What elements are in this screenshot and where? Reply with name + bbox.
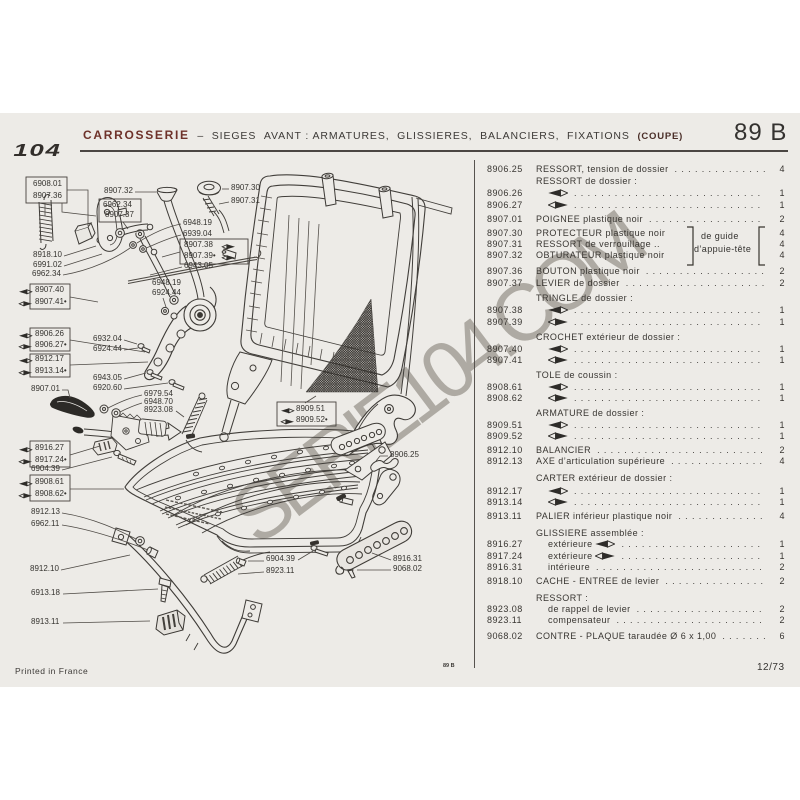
svg-text:8912.17: 8912.17 <box>35 354 64 363</box>
svg-text:8909.51: 8909.51 <box>296 404 325 413</box>
svg-text:8913.11: 8913.11 <box>31 617 60 626</box>
svg-text:8917.24•: 8917.24• <box>35 455 67 464</box>
svg-text:8907.37: 8907.37 <box>105 210 134 219</box>
svg-text:6948.19: 6948.19 <box>152 278 181 287</box>
svg-text:8908.61: 8908.61 <box>35 477 64 486</box>
svg-text:6943.05: 6943.05 <box>93 373 122 382</box>
svg-text:6913.18: 6913.18 <box>31 588 60 597</box>
svg-text:8913.14•: 8913.14• <box>35 366 67 375</box>
svg-text:6939.04: 6939.04 <box>183 229 212 238</box>
svg-text:8907.39•: 8907.39• <box>184 251 216 260</box>
svg-text:8907.41•: 8907.41• <box>35 297 67 306</box>
svg-text:6908.01: 6908.01 <box>33 179 62 188</box>
svg-text:6932.04: 6932.04 <box>93 334 122 343</box>
svg-text:8918.10: 8918.10 <box>33 250 62 259</box>
svg-text:8907.38: 8907.38 <box>184 240 213 249</box>
svg-text:8907.32: 8907.32 <box>104 186 133 195</box>
svg-text:6962.34: 6962.34 <box>103 200 132 209</box>
svg-text:6904.39: 6904.39 <box>31 464 60 473</box>
svg-text:8912.13: 8912.13 <box>31 507 60 516</box>
svg-text:8907.36: 8907.36 <box>33 191 62 200</box>
svg-text:6924.44: 6924.44 <box>152 288 181 297</box>
svg-text:8909.52•: 8909.52• <box>296 415 328 424</box>
svg-text:8906.25: 8906.25 <box>390 450 419 459</box>
svg-text:104: 104 <box>13 140 61 160</box>
svg-text:6904.39: 6904.39 <box>266 554 295 563</box>
svg-text:6948.19: 6948.19 <box>183 218 212 227</box>
svg-text:6924.44: 6924.44 <box>93 344 122 353</box>
svg-text:8907.30: 8907.30 <box>231 183 260 192</box>
svg-text:8907.31: 8907.31 <box>231 196 260 205</box>
svg-text:6962.34: 6962.34 <box>32 269 61 278</box>
svg-text:8916.27: 8916.27 <box>35 443 64 452</box>
svg-text:8923.11: 8923.11 <box>266 566 295 575</box>
svg-text:8912.10: 8912.10 <box>30 564 59 573</box>
svg-text:8906.27•: 8906.27• <box>35 340 67 349</box>
svg-text:8906.26: 8906.26 <box>35 329 64 338</box>
svg-text:8923.08: 8923.08 <box>144 405 173 414</box>
svg-text:8907.01: 8907.01 <box>31 384 60 393</box>
svg-text:8908.62•: 8908.62• <box>35 489 67 498</box>
svg-text:6962.11: 6962.11 <box>31 519 60 528</box>
svg-text:6943.05: 6943.05 <box>184 261 213 270</box>
svg-text:8916.31: 8916.31 <box>393 554 422 563</box>
svg-text:6920.60: 6920.60 <box>93 383 122 392</box>
svg-text:8907.40: 8907.40 <box>35 285 64 294</box>
svg-text:6991.02: 6991.02 <box>33 260 62 269</box>
svg-text:9068.02: 9068.02 <box>393 564 422 573</box>
